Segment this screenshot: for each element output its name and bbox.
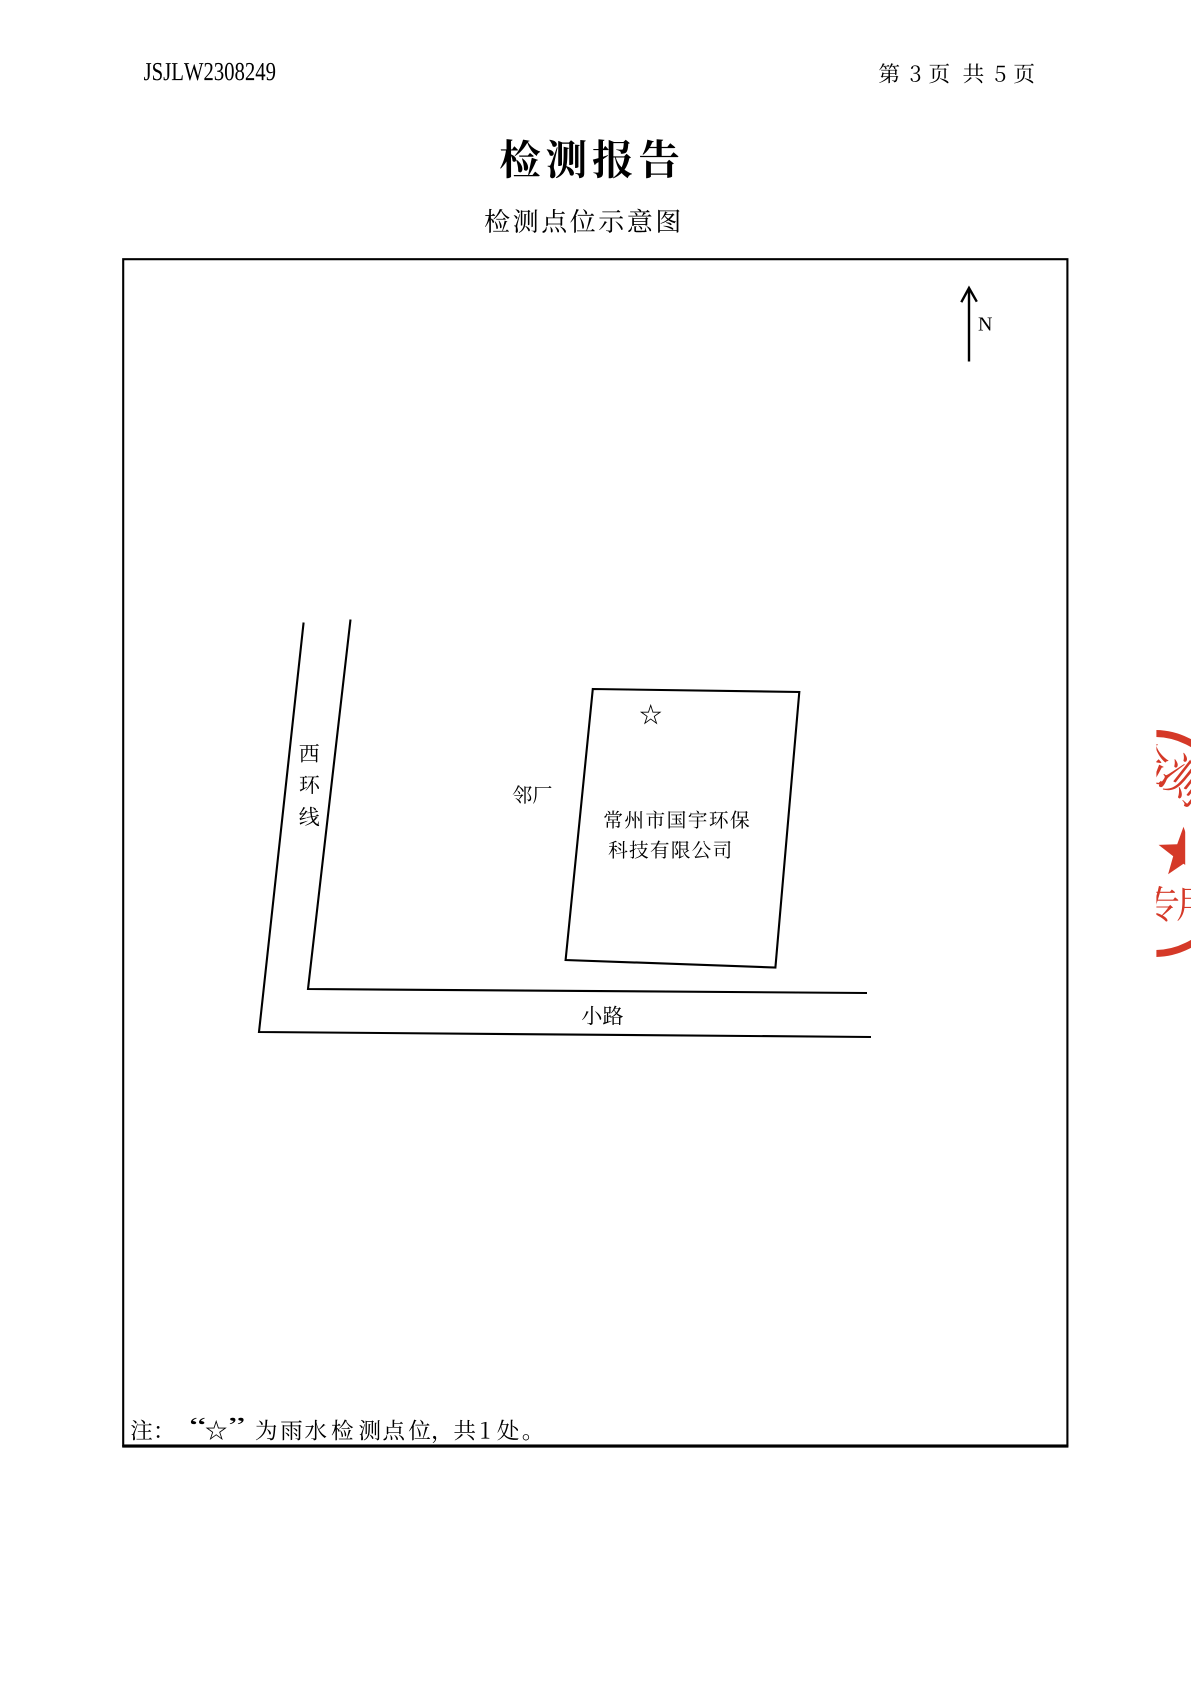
svg-text:N: N <box>978 314 992 336</box>
